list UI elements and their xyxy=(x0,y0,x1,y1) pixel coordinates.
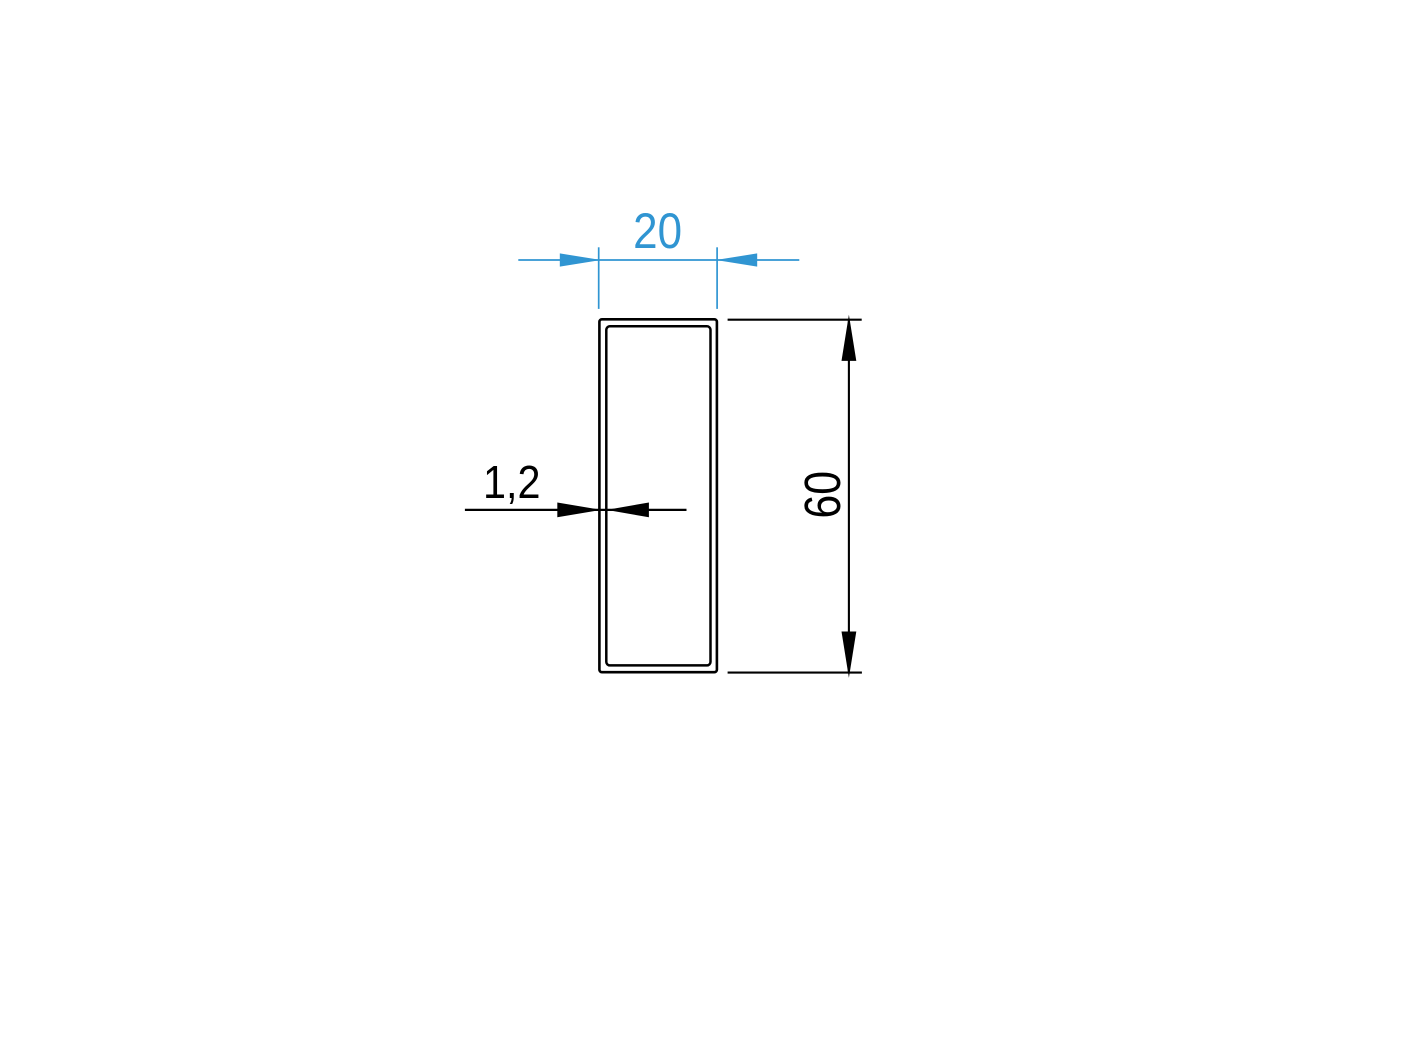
svg-text:1,2: 1,2 xyxy=(483,456,541,508)
svg-text:60: 60 xyxy=(794,471,851,519)
svg-text:20: 20 xyxy=(633,203,682,259)
